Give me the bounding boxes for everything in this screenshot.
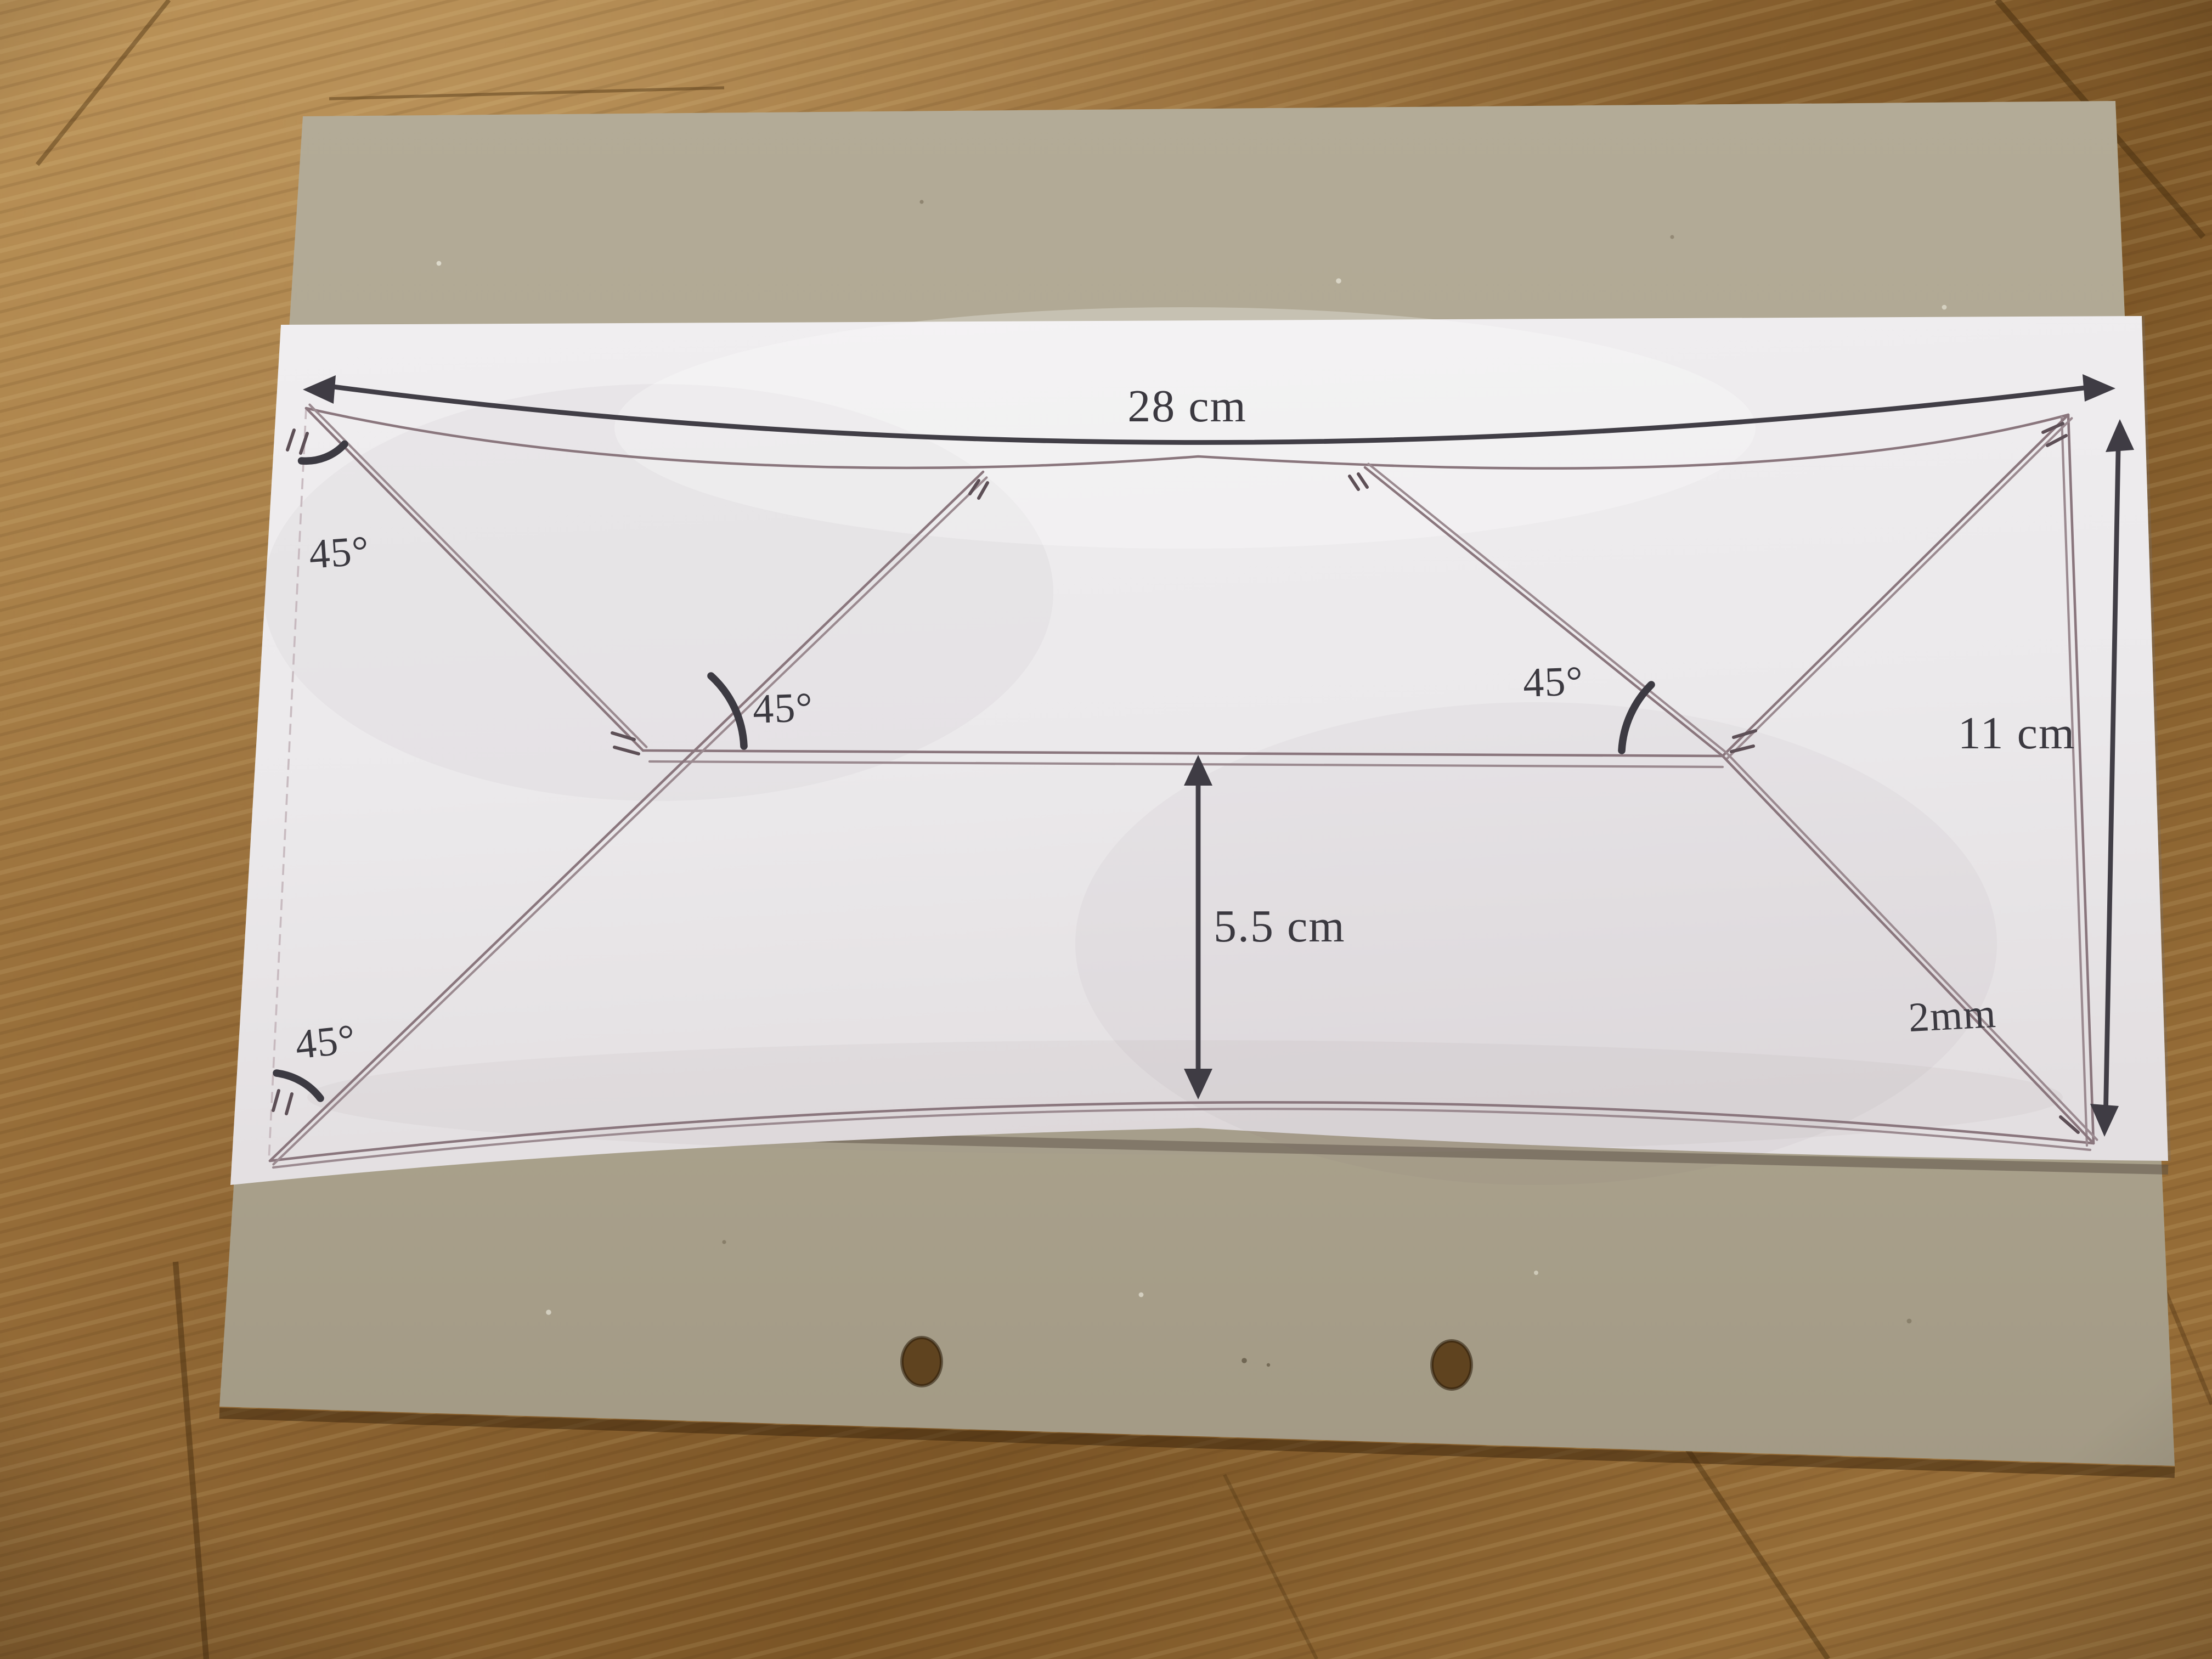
vignette-overlay (0, 0, 2212, 1659)
photo-scene: 28 cm 11 cm 5.5 cm 2mm 45° 45° 45° 45° (0, 0, 2212, 1659)
